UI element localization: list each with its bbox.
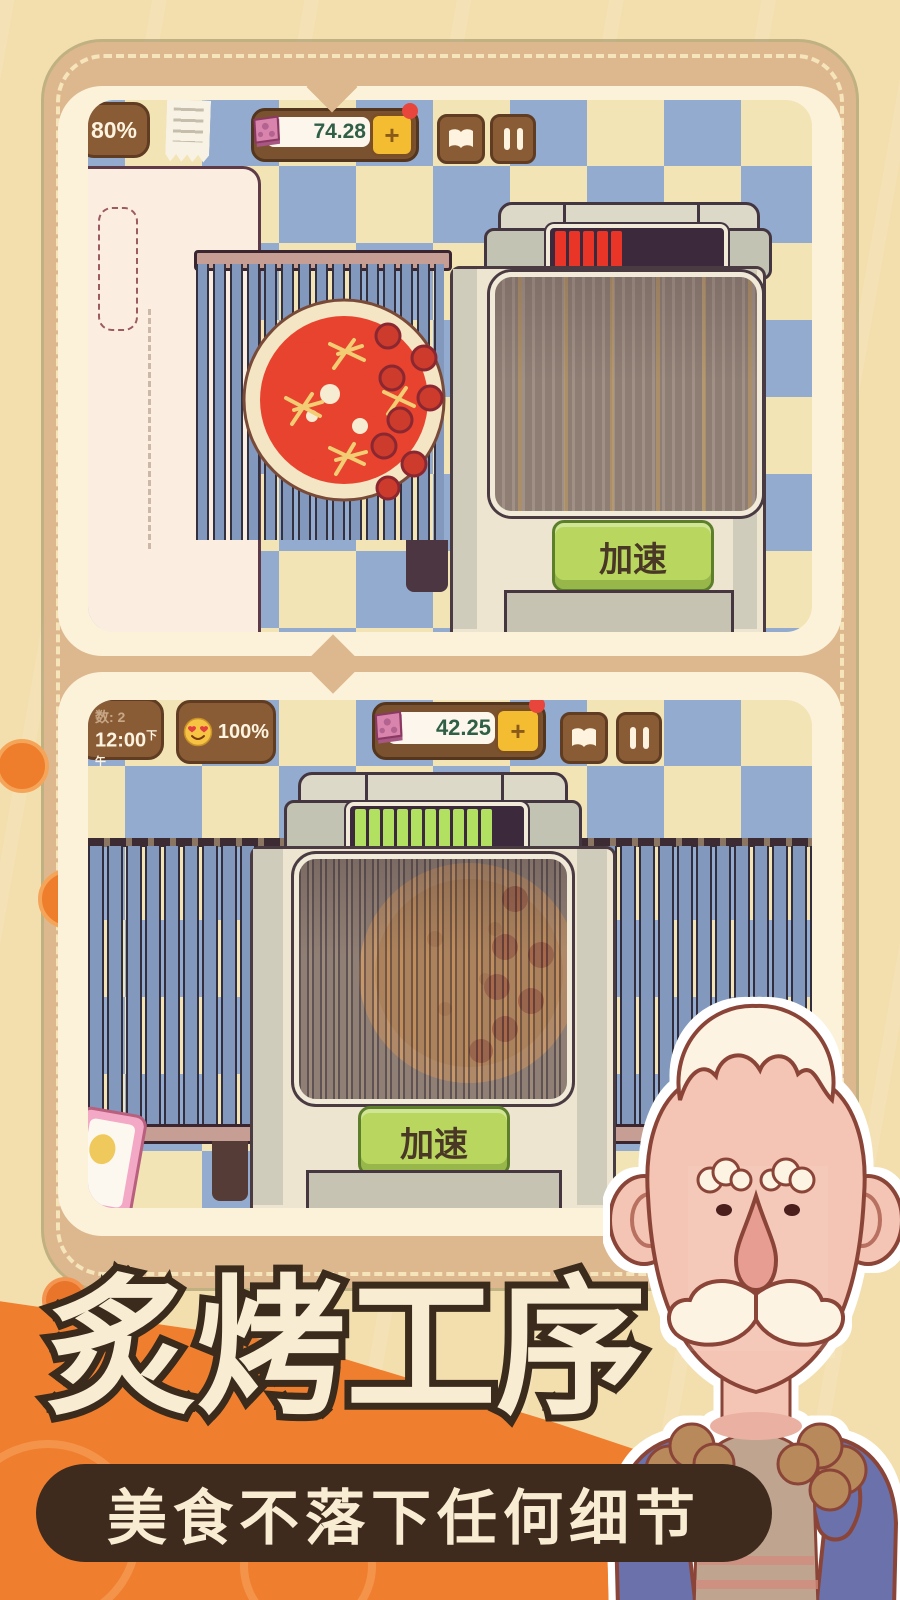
money-value: 74.28 <box>313 120 366 144</box>
orange-dot-decoration <box>0 739 49 793</box>
money-counter[interactable]: 42.25 + <box>372 702 546 760</box>
time-value: 12:00 <box>95 730 146 752</box>
clock: 12:00下午 <box>95 727 161 778</box>
grill-screen <box>299 859 567 1099</box>
pause-button[interactable] <box>490 114 536 164</box>
recipe-book-button[interactable] <box>437 114 485 164</box>
speed-up-button[interactable]: 加速 <box>358 1106 510 1176</box>
photo-sticker-art <box>88 1132 118 1166</box>
pause-icon <box>630 727 649 749</box>
receipt-icon[interactable] <box>165 100 211 163</box>
plus-label: + <box>384 120 399 151</box>
oven-grill-window <box>490 272 762 516</box>
heart-eyes-emoji-icon <box>183 717 213 747</box>
game-screenshot-1: 加速 80% 74.28 + <box>88 100 812 632</box>
oven-base <box>306 1170 562 1208</box>
oven-side <box>453 269 477 629</box>
notification-dot <box>402 103 418 119</box>
oven-base <box>504 590 734 632</box>
add-money-button[interactable]: + <box>495 708 541 754</box>
mood-badge[interactable]: 100% <box>176 700 276 764</box>
headline: 炙烤工序 炙烤工序 <box>46 1268 706 1438</box>
oven-side <box>577 849 607 1205</box>
promo-page: 加速 80% 74.28 + <box>0 0 900 1600</box>
tagline-pill: 美食不落下任何细节 <box>36 1464 772 1562</box>
rack-leg <box>212 1141 248 1201</box>
speed-up-label: 加速 <box>400 1117 468 1166</box>
money-counter[interactable]: 74.28 + <box>251 108 419 162</box>
pizza-coin-icon <box>246 111 290 155</box>
headline-text: 炙烤工序 <box>46 1268 646 1428</box>
oven-grill-window <box>294 854 572 1104</box>
satisfaction-value: 80% <box>91 117 137 144</box>
day-label: 数: 2 <box>95 707 161 727</box>
pizza-coin-icon <box>367 706 413 752</box>
pause-icon <box>504 128 523 150</box>
speed-up-button[interactable]: 加速 <box>552 520 714 592</box>
rack-leg <box>406 540 448 592</box>
fridge-door-seam <box>98 207 138 331</box>
add-money-button[interactable]: + <box>370 113 414 157</box>
pepperoni-pizza[interactable] <box>242 298 447 503</box>
mood-value: 100% <box>218 721 269 744</box>
book-icon <box>570 727 598 749</box>
money-value: 42.25 <box>436 715 491 741</box>
plus-label: + <box>510 716 525 747</box>
pause-button[interactable] <box>616 712 662 764</box>
photo-sticker-inner <box>88 1118 136 1208</box>
day-time-badge[interactable]: 数: 2 12:00下午 <box>88 700 164 760</box>
satisfaction-badge[interactable]: 80% <box>88 102 150 158</box>
tagline-text: 美食不落下任何细节 <box>107 1470 701 1557</box>
receipt-lines <box>173 107 204 142</box>
fridge-door-seam <box>148 309 151 549</box>
oven-side <box>253 849 283 1205</box>
notification-dot <box>529 700 545 713</box>
recipe-book-button[interactable] <box>560 712 608 764</box>
book-icon <box>447 128 475 150</box>
speed-up-label: 加速 <box>599 532 667 581</box>
